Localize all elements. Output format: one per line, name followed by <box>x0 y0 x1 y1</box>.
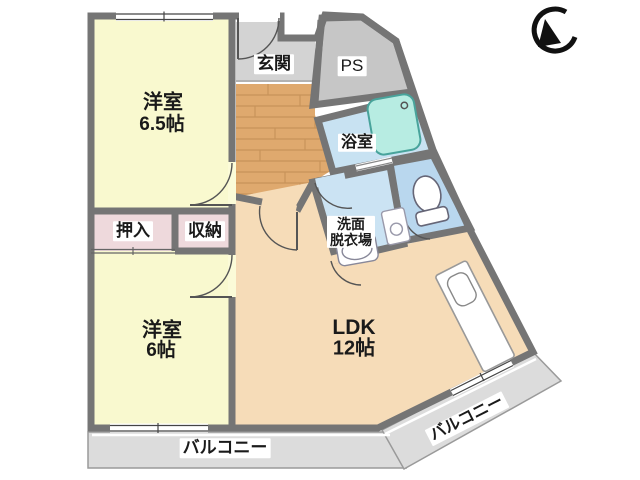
bedroom1-window <box>116 12 213 22</box>
washroom-label-line2: 脱衣場 <box>330 232 372 248</box>
bedroom2-name: 洋室 <box>142 320 182 343</box>
floor-plan: 洋室 6.5帖 洋室 6帖 LDK 12帖 玄関 PS 浴室 洗面 脱衣場 押入… <box>0 0 640 480</box>
entrance-label: 玄関 <box>254 54 294 74</box>
ldk-name: LDK <box>332 316 375 340</box>
washroom-label-line1: 洗面 <box>330 216 372 232</box>
bedroom1-name: 洋室 <box>143 92 183 115</box>
balcony-south-label: バルコニー <box>180 438 271 458</box>
washroom-label: 洗面 脱衣場 <box>327 216 375 248</box>
bedroom1-size: 6.5帖 <box>139 114 184 136</box>
floor-plan-drawing <box>0 0 640 480</box>
bedroom2-window <box>110 423 208 433</box>
closet-label: 押入 <box>113 221 153 241</box>
bedroom2-size: 6帖 <box>146 340 176 362</box>
storage-label: 収納 <box>185 221 225 241</box>
bath-label: 浴室 <box>338 134 376 152</box>
ldk-size: 12帖 <box>333 338 375 361</box>
north-arrow-icon <box>534 9 575 51</box>
pipe-space-label: PS <box>338 56 367 76</box>
